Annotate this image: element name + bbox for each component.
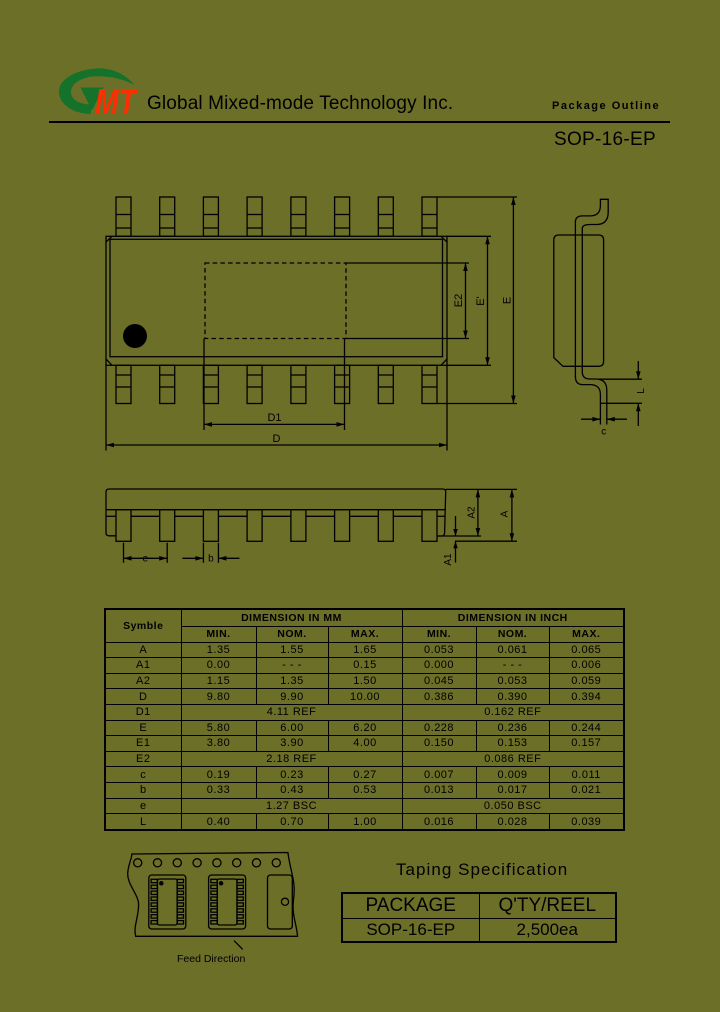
- svg-text:A1: A1: [443, 553, 454, 566]
- svg-text:E: E: [501, 297, 513, 304]
- svg-text:b: b: [208, 553, 214, 564]
- svg-text:A: A: [500, 510, 511, 517]
- svg-text:E2: E2: [453, 294, 465, 307]
- svg-text:D1: D1: [267, 412, 281, 424]
- svg-text:E': E': [475, 296, 487, 305]
- svg-text:MT: MT: [95, 81, 138, 122]
- svg-text:D: D: [273, 433, 281, 445]
- svg-text:e: e: [143, 553, 149, 564]
- svg-text:L: L: [636, 388, 647, 394]
- svg-text:c: c: [601, 427, 606, 438]
- svg-text:A2: A2: [466, 506, 477, 519]
